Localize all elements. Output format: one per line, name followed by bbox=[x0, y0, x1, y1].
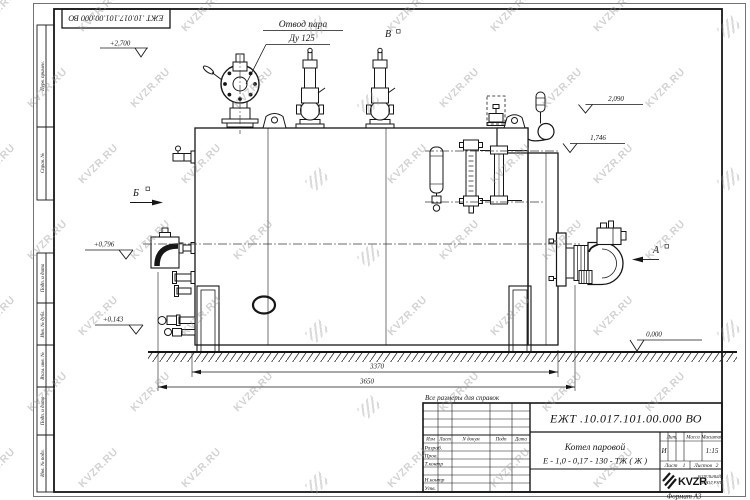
col-podp: Подп bbox=[494, 438, 507, 443]
col-list: Лист bbox=[438, 438, 451, 443]
elevation-feed: +0,796 bbox=[94, 241, 115, 249]
margin-label-podp-data-1: Подп. и дата bbox=[41, 263, 46, 293]
margin-label-podp-data-2: Подп. и дата bbox=[41, 396, 46, 426]
sheet-value: 1 bbox=[683, 463, 686, 469]
title-block: ЕЖТ .10.017.101.00.000 ВО Котел паровой … bbox=[423, 403, 723, 492]
supports bbox=[197, 286, 531, 352]
margin-label-inv-dubl: Инв. № дубл. bbox=[40, 310, 46, 338]
steam-outlet-callout: Отвод пара Ду 125 bbox=[246, 19, 343, 84]
sheets-value: 2 bbox=[716, 463, 719, 469]
margin-label-inv-podl: Инв. № подл. bbox=[40, 449, 46, 478]
margin-label-vzam-inv: Взам. инв. № bbox=[40, 352, 46, 380]
product-name-line1: Котел паровой bbox=[564, 442, 626, 453]
view-labels: Б В А bbox=[130, 29, 669, 262]
steam-outlet-line1: Отвод пара bbox=[279, 19, 328, 30]
scale-header: Масштаб bbox=[700, 436, 723, 441]
col-izm: Изм bbox=[425, 438, 435, 443]
sheet-label: Лист bbox=[664, 463, 678, 469]
safety-valve-1 bbox=[296, 48, 325, 128]
row-razrab: Разраб. bbox=[424, 445, 443, 452]
logo-sub1: КОТЕЛЬНЫЙ bbox=[697, 473, 721, 479]
corner-designation-stamp: ЕЖТ .10.017.101.00.000 ВО bbox=[62, 9, 170, 28]
elevation-rear: 1,746 bbox=[590, 134, 606, 142]
elevation-ground: 0,000 bbox=[646, 331, 662, 339]
manhole bbox=[253, 297, 275, 314]
burner bbox=[549, 221, 626, 286]
view-b-label: Б bbox=[132, 188, 139, 199]
margin-label-perv-primen: Перв. примен. bbox=[41, 61, 46, 92]
drawing-sheet: Перв. примен. Справ. № Подп. и дата Инв.… bbox=[0, 0, 750, 500]
steam-outlet-line2: Ду 125 bbox=[288, 33, 315, 43]
dim-shell-length: 3370 bbox=[369, 363, 385, 371]
row-prov: Пров. bbox=[424, 454, 438, 460]
elevation-top: +2,700 bbox=[110, 40, 131, 48]
logo-sub2: ЗАВОД РЭП bbox=[701, 481, 721, 485]
front-fittings bbox=[151, 146, 195, 336]
view-a-label: А bbox=[652, 245, 660, 256]
corner-designation-text: ЕЖТ .10.017.101.00.000 ВО bbox=[68, 14, 164, 23]
dim-overall-length: 3650 bbox=[359, 378, 375, 386]
ground bbox=[148, 352, 737, 362]
lit-header: Лит. bbox=[666, 436, 678, 441]
kvzr-logo-icon bbox=[663, 473, 676, 489]
lit-value: И bbox=[660, 447, 667, 455]
row-nkontr: Н.контр bbox=[424, 478, 445, 484]
row-utv: Утв. bbox=[425, 486, 436, 492]
margin-label-sprav-no: Справ. № bbox=[40, 153, 46, 174]
col-data: Дата bbox=[514, 438, 527, 443]
scale-value: 1:15 bbox=[706, 447, 719, 455]
view-v-label: В bbox=[385, 29, 391, 40]
row-tkontr: Т.контр bbox=[425, 462, 444, 468]
dimensions: 3370 3650 bbox=[158, 272, 575, 391]
steam-outlet-valve bbox=[202, 54, 259, 127]
elevation-marks: +2,700 2,090 1,746 +0,796 +0,143 0,000 bbox=[85, 40, 702, 352]
reference-note: Все размеры для справок bbox=[425, 394, 500, 402]
product-name-line2: Е - 1,0 - 0,17 - 130 - ТЖ ( Ж ) bbox=[542, 456, 647, 466]
format-label: Формат А3 bbox=[667, 493, 702, 500]
boiler-drawing-svg: Перв. примен. Справ. № Подп. и дата Инв.… bbox=[0, 0, 750, 500]
safety-valve-2 bbox=[366, 48, 395, 128]
mass-header: Масса bbox=[685, 436, 700, 441]
kvzr-logo: KVZR КОТЕЛЬНЫЙ ЗАВОД РЭП bbox=[663, 473, 721, 489]
titleblock-designation: ЕЖТ .10.017.101.00.000 ВО bbox=[549, 412, 702, 426]
elevation-drain: +0,143 bbox=[103, 316, 124, 324]
elevation-gauge: 2,090 bbox=[608, 95, 624, 103]
sheets-label: Листов bbox=[693, 463, 713, 469]
col-ndok: N докум bbox=[461, 438, 480, 443]
